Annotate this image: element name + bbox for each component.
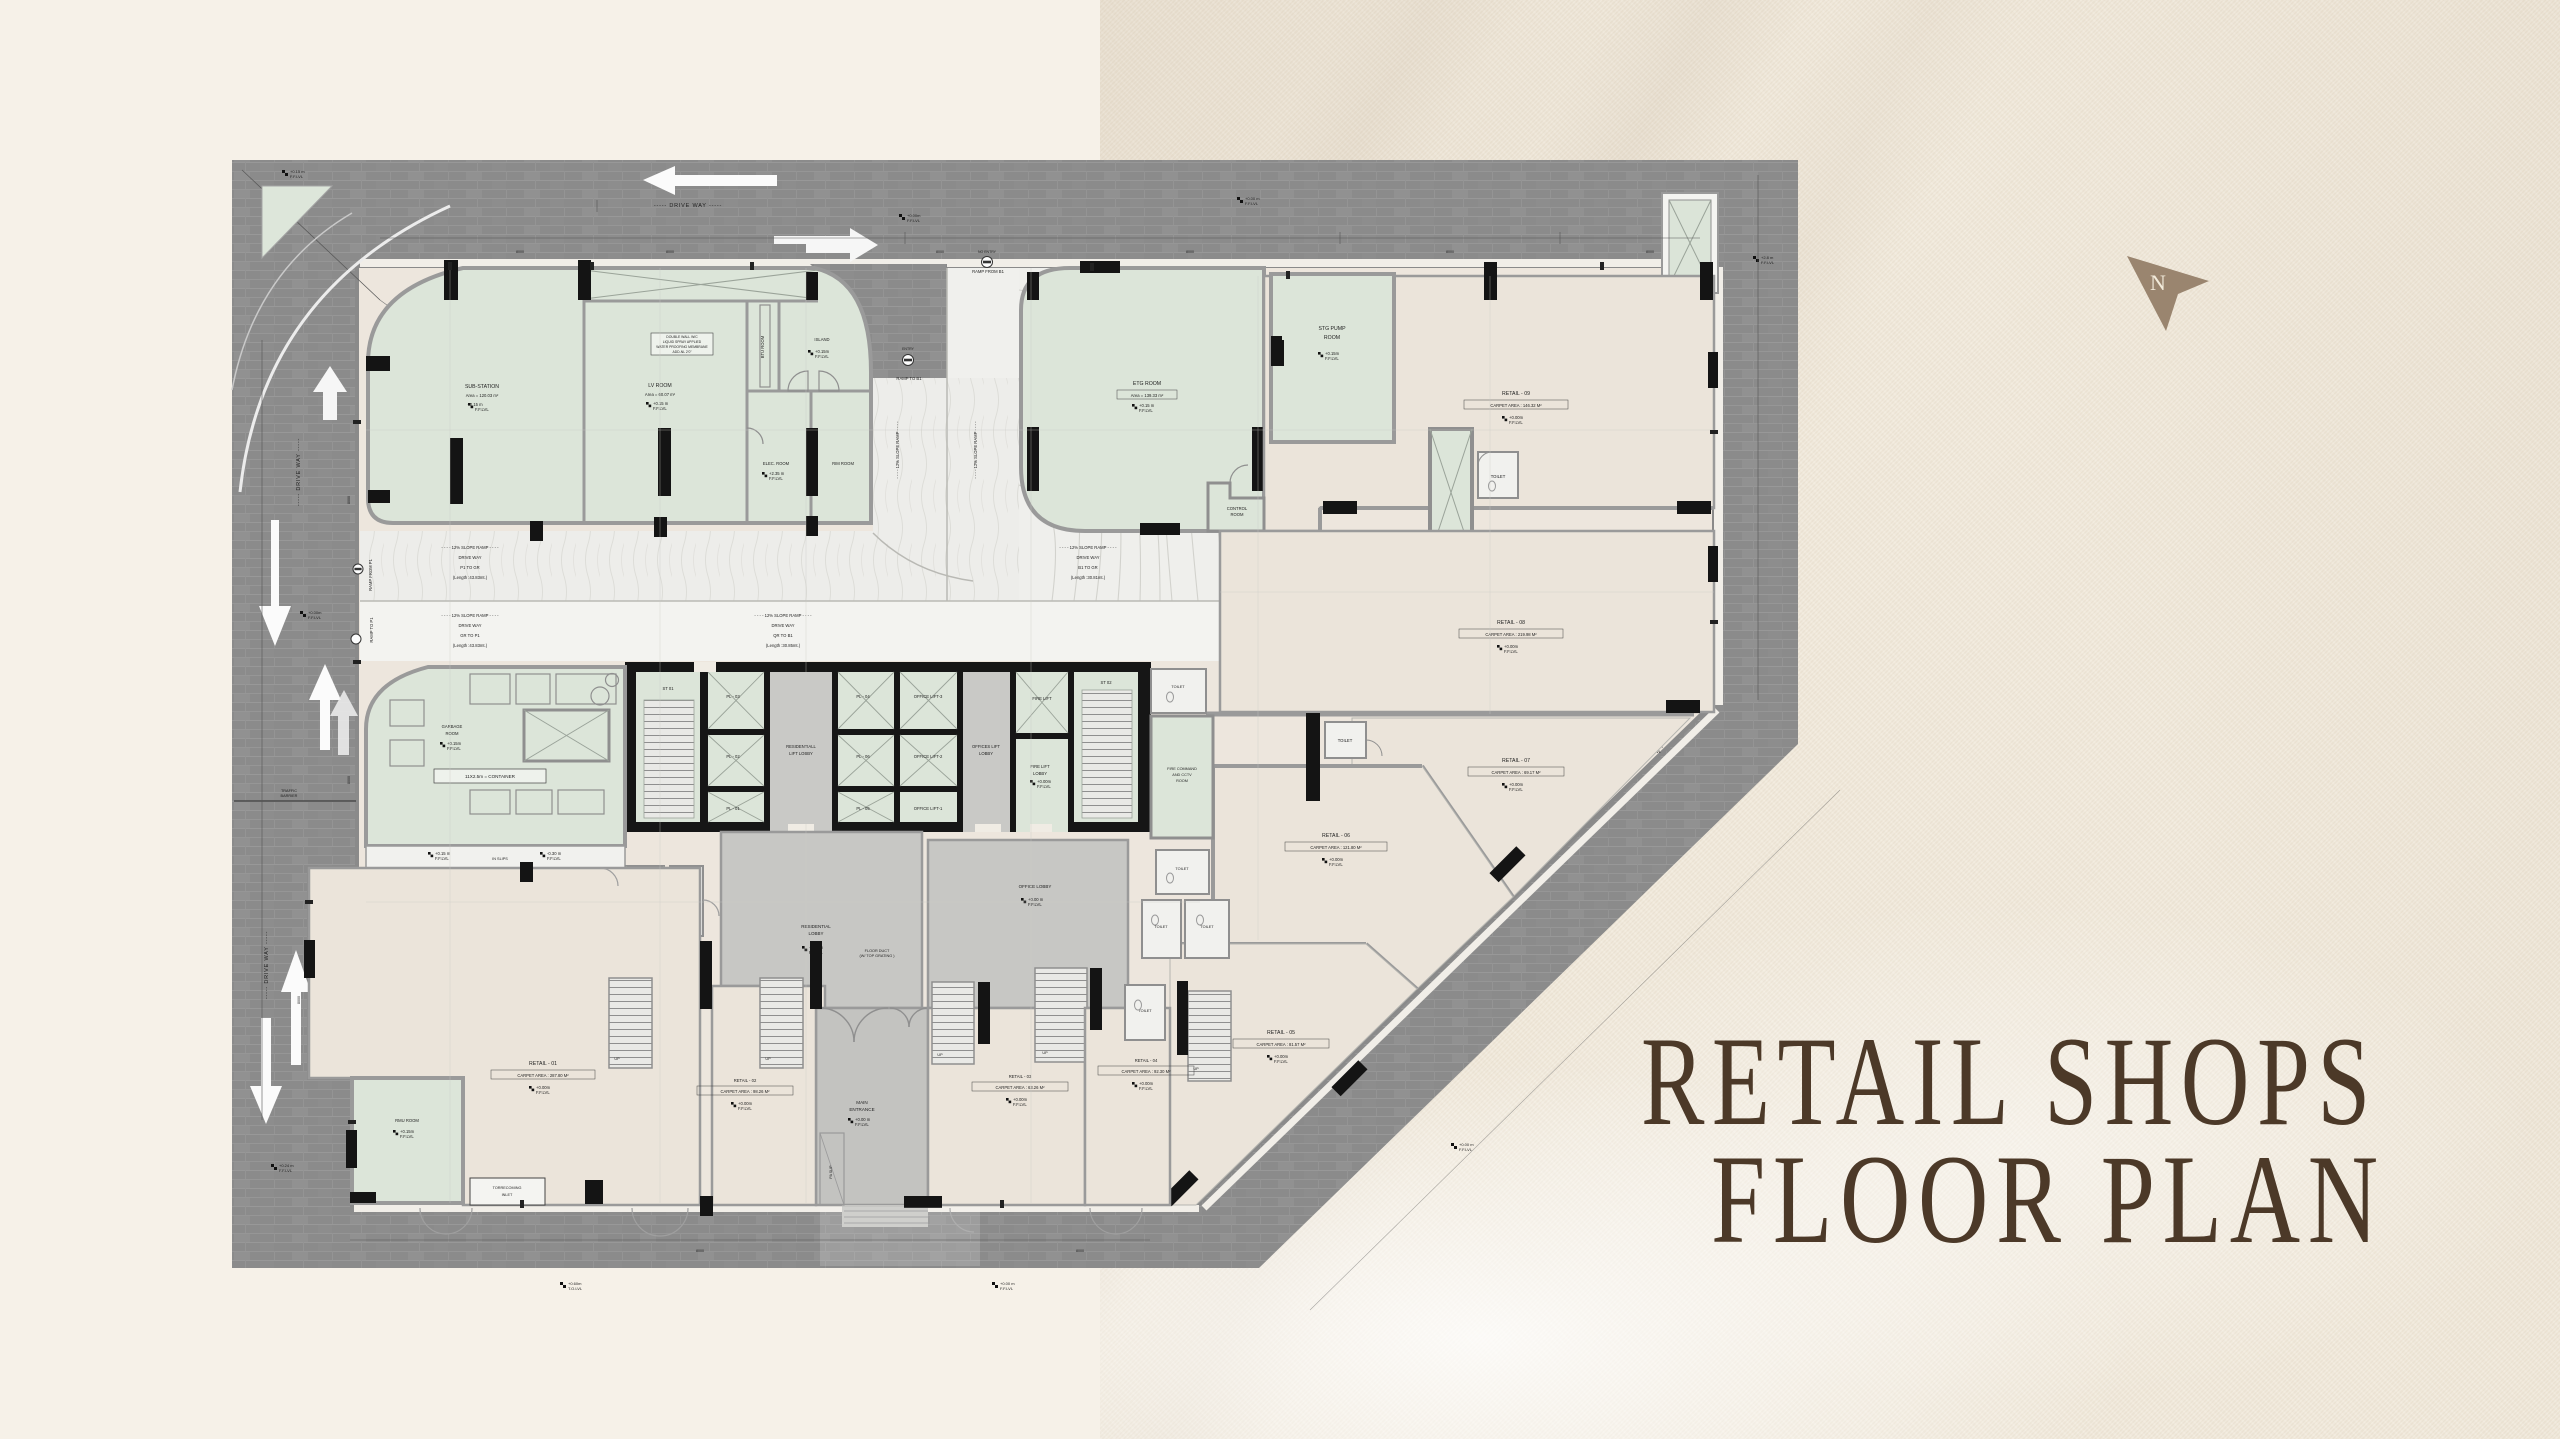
svg-text:PL - 06: PL - 06	[856, 754, 870, 759]
svg-text:F.F.LVL: F.F.LVL	[1028, 902, 1042, 907]
svg-text:8000: 8000	[516, 250, 524, 254]
svg-text:GARBAGE: GARBAGE	[442, 724, 463, 729]
svg-text:TOILET: TOILET	[1154, 925, 1168, 929]
svg-text:TOILET: TOILET	[1200, 925, 1214, 929]
svg-text:F.F.LVL: F.F.LVL	[1761, 260, 1775, 265]
svg-text:TRAFFIC: TRAFFIC	[281, 789, 297, 793]
svg-text:8000: 8000	[1186, 250, 1194, 254]
svg-text:F.F.LVL: F.F.LVL	[1139, 1086, 1153, 1091]
svg-text:DOUBLE WALL W/C: DOUBLE WALL W/C	[666, 335, 698, 339]
svg-text:F.F.LVL: F.F.LVL	[907, 218, 921, 223]
svg-text:ST 02: ST 02	[1100, 680, 1112, 685]
svg-text:PL - 03: PL - 03	[726, 694, 740, 699]
svg-text:F.F.LVL: F.F.LVL	[1509, 420, 1523, 425]
svg-text:LOBBY: LOBBY	[979, 751, 993, 756]
svg-text:----- DRIVE WAY -----: ----- DRIVE WAY -----	[654, 203, 722, 209]
svg-text:PA SLIP: PA SLIP	[829, 1165, 833, 1179]
svg-text:TORRECOMING: TORRECOMING	[493, 1186, 522, 1190]
svg-text:----- DRIVE WAY -----: ----- DRIVE WAY -----	[264, 931, 270, 999]
svg-text:DRIVE WAY: DRIVE WAY	[458, 623, 481, 628]
svg-text:BARRIER: BARRIER	[281, 794, 298, 798]
svg-text:ROOM: ROOM	[1324, 335, 1340, 341]
svg-text:FIRE LIFT: FIRE LIFT	[1032, 696, 1052, 701]
svg-text:ENTRY: ENTRY	[902, 347, 914, 351]
svg-text:RETAIL - 01: RETAIL - 01	[529, 1061, 557, 1067]
svg-text:PL - 04: PL - 04	[856, 694, 870, 699]
svg-text:P1 TO GR: P1 TO GR	[460, 565, 479, 570]
svg-text:CARPET AREA : 63.26 M²: CARPET AREA : 63.26 M²	[995, 1085, 1045, 1090]
svg-text:ROOM: ROOM	[1230, 512, 1244, 517]
svg-text:PL - 02: PL - 02	[726, 754, 740, 759]
svg-text:F.F.LVL: F.F.LVL	[1504, 649, 1518, 654]
svg-text:RETAIL - 09: RETAIL - 09	[1502, 391, 1530, 397]
svg-text:RAMP FROM P1: RAMP FROM P1	[368, 558, 373, 590]
svg-text:CARPET AREA : 81.57 M²: CARPET AREA : 81.57 M²	[1256, 1042, 1306, 1047]
svg-text:RAMP TO B1: RAMP TO B1	[896, 376, 922, 381]
svg-text:RETAIL - 03: RETAIL - 03	[1009, 1074, 1032, 1079]
svg-text:ROOM: ROOM	[445, 731, 459, 736]
svg-text:MAIN: MAIN	[856, 1100, 867, 1105]
svg-text:LOBBY: LOBBY	[808, 931, 823, 936]
svg-text:8000: 8000	[1076, 1249, 1084, 1253]
svg-text:RMU ROOM: RMU ROOM	[395, 1118, 419, 1123]
svg-text:(Length :43.83mt.): (Length :43.83mt.)	[453, 575, 488, 580]
svg-text:F.F.LVL: F.F.LVL	[815, 354, 829, 359]
svg-text:DRIVE WAY: DRIVE WAY	[458, 555, 481, 560]
svg-text:F.F.LVL: F.F.LVL	[536, 1090, 550, 1095]
svg-text:F.F.LVL: F.F.LVL	[1139, 408, 1153, 413]
svg-text:T.O.LVL: T.O.LVL	[568, 1286, 583, 1291]
svg-text:F.F.LVL: F.F.LVL	[1459, 1147, 1473, 1152]
svg-text:TOILET: TOILET	[1338, 738, 1353, 743]
svg-text:RETAIL - 04: RETAIL - 04	[1135, 1058, 1158, 1063]
svg-text:F.F.LVL: F.F.LVL	[769, 476, 783, 481]
svg-text:(W/ TOP GRATING ): (W/ TOP GRATING )	[860, 954, 896, 958]
svg-text:TOILET: TOILET	[1138, 1009, 1152, 1013]
svg-text:F.F.LVL: F.F.LVL	[279, 1168, 293, 1173]
svg-text:ELEC. ROOM: ELEC. ROOM	[763, 461, 790, 466]
svg-text:RETAIL - 08: RETAIL - 08	[1497, 620, 1525, 626]
svg-text:RAMP TO P1: RAMP TO P1	[369, 617, 374, 643]
svg-text:ISLAND: ISLAND	[814, 337, 829, 342]
svg-text:CARPET AREA : 92.30 M²: CARPET AREA : 92.30 M²	[1121, 1069, 1171, 1074]
svg-text:LOBBY: LOBBY	[1033, 771, 1047, 776]
svg-text:ROOM: ROOM	[1176, 779, 1188, 783]
svg-text:STG PUMP: STG PUMP	[1318, 326, 1346, 332]
svg-text:----- DRIVE WAY -----: ----- DRIVE WAY -----	[296, 438, 302, 506]
svg-text:ETG ROOM: ETG ROOM	[1133, 381, 1161, 387]
svg-text:Area = 60.07 m²: Area = 60.07 m²	[645, 392, 676, 397]
svg-text:8000: 8000	[936, 250, 944, 254]
svg-text:F.F.LVL: F.F.LVL	[435, 856, 449, 861]
svg-text:UP: UP	[765, 1057, 771, 1061]
svg-text:ADD-NL 2'0": ADD-NL 2'0"	[672, 350, 692, 354]
svg-text:TOILET: TOILET	[1491, 474, 1506, 479]
svg-text:RAMP FROM B1: RAMP FROM B1	[972, 269, 1004, 274]
svg-text:8000: 8000	[297, 996, 301, 1004]
svg-text:F.F.LVL: F.F.LVL	[290, 174, 304, 179]
svg-text:CARPET AREA : 287.80 M²: CARPET AREA : 287.80 M²	[517, 1073, 569, 1078]
svg-text:OFFICE LIFT-3: OFFICE LIFT-3	[914, 694, 943, 699]
svg-text:B1 TO GR: B1 TO GR	[1078, 565, 1097, 570]
svg-text:UP: UP	[937, 1053, 943, 1057]
svg-text:8000: 8000	[1646, 250, 1654, 254]
svg-text:WATER PROOFING MEMBRANE: WATER PROOFING MEMBRANE	[656, 345, 708, 349]
svg-text:CARPET AREA : 69.17 M²: CARPET AREA : 69.17 M²	[1491, 770, 1541, 775]
svg-text:RETAIL - 06: RETAIL - 06	[1322, 833, 1350, 839]
svg-text:SUB-STATION: SUB-STATION	[465, 384, 499, 390]
svg-text:CARPET AREA : 98.26 M²: CARPET AREA : 98.26 M²	[720, 1089, 770, 1094]
svg-text:FLOOR DUCT: FLOOR DUCT	[865, 949, 890, 953]
svg-text:F.F.LVL: F.F.LVL	[855, 1122, 869, 1127]
svg-text:RESIDENTIAL: RESIDENTIAL	[801, 924, 831, 929]
svg-text:Area = 139.33 m²: Area = 139.33 m²	[1131, 393, 1164, 398]
svg-text:F.F.LVL: F.F.LVL	[1329, 862, 1343, 867]
svg-text:CONTROL: CONTROL	[1227, 506, 1248, 511]
svg-text:OFFICE LIFT-2: OFFICE LIFT-2	[914, 754, 943, 759]
svg-text:8000: 8000	[666, 250, 674, 254]
svg-text:QR TO B1: QR TO B1	[773, 633, 793, 638]
svg-text:PL - 01: PL - 01	[726, 806, 740, 811]
svg-text:LIQUID SPRAY APPLIED: LIQUID SPRAY APPLIED	[663, 340, 702, 344]
svg-text:GR TO P1: GR TO P1	[460, 633, 480, 638]
svg-text:BTU ROOM: BTU ROOM	[760, 335, 765, 358]
svg-text:PL - 05: PL - 05	[856, 806, 870, 811]
svg-text:RETAIL - 02: RETAIL - 02	[734, 1078, 757, 1083]
svg-text:RETAIL - 05: RETAIL - 05	[1267, 1030, 1295, 1036]
svg-text:INLET: INLET	[502, 1193, 513, 1197]
svg-text:CARPET AREA : 146.32 M²: CARPET AREA : 146.32 M²	[1490, 403, 1542, 408]
svg-text:OFFICE LOBBY: OFFICE LOBBY	[1019, 884, 1052, 889]
svg-text:NO ENTRY: NO ENTRY	[978, 250, 997, 254]
svg-text:TOILET: TOILET	[1175, 867, 1189, 871]
svg-text:LIFT LOBBY: LIFT LOBBY	[789, 751, 813, 756]
svg-text:- - - - 12% SLOPE RAMP - - - -: - - - - 12% SLOPE RAMP - - - -	[895, 421, 900, 479]
svg-text:RESIDENTIALL: RESIDENTIALL	[786, 744, 816, 749]
svg-text:8000: 8000	[347, 776, 351, 784]
svg-text:TOILET: TOILET	[1171, 685, 1185, 689]
svg-text:AND CCTV: AND CCTV	[1172, 773, 1192, 777]
svg-text:ST 01: ST 01	[662, 686, 674, 691]
svg-text:DRIVE WAY: DRIVE WAY	[1076, 555, 1099, 560]
svg-text:- - - - 12% SLOPE RAMP - - - -: - - - - 12% SLOPE RAMP - - - -	[754, 613, 812, 618]
svg-text:F.F.LVL: F.F.LVL	[1245, 201, 1259, 206]
svg-text:RETAIL - 07: RETAIL - 07	[1502, 758, 1530, 764]
svg-text:FIRE LIFT: FIRE LIFT	[1030, 764, 1050, 769]
svg-text:Area = 120.03 m²: Area = 120.03 m²	[466, 393, 499, 398]
svg-text:11X2.5m = CONTAINER: 11X2.5m = CONTAINER	[465, 774, 516, 779]
svg-text:OFFICES LIFT: OFFICES LIFT	[972, 744, 1000, 749]
svg-text:RIM ROOM: RIM ROOM	[832, 461, 854, 466]
svg-text:ENTRANCE: ENTRANCE	[849, 1107, 874, 1112]
svg-text:CARPET AREA : 121.80 M²: CARPET AREA : 121.80 M²	[1310, 845, 1362, 850]
svg-text:OFFICE LIFT-1: OFFICE LIFT-1	[914, 806, 943, 811]
svg-text:DRIVE WAY: DRIVE WAY	[771, 623, 794, 628]
svg-text:F.F.LVL: F.F.LVL	[1325, 356, 1339, 361]
svg-text:CARPET AREA : 219.98 M²: CARPET AREA : 219.98 M²	[1485, 632, 1537, 637]
svg-text:F.F.LVL: F.F.LVL	[400, 1134, 414, 1139]
svg-text:- - - - 12% SLOPE RAMP - - - -: - - - - 12% SLOPE RAMP - - - -	[973, 421, 978, 479]
svg-text:(Length :30.85mt.): (Length :30.85mt.)	[766, 643, 801, 648]
svg-text:FIRE COMMAND: FIRE COMMAND	[1167, 767, 1197, 771]
svg-text:F.F.LVL: F.F.LVL	[547, 856, 561, 861]
svg-text:F.F.LVL: F.F.LVL	[1509, 787, 1523, 792]
svg-text:F.F.LVL: F.F.LVL	[308, 615, 322, 620]
svg-text:F.F.LVL: F.F.LVL	[1000, 1286, 1014, 1291]
svg-text:8000: 8000	[696, 1249, 704, 1253]
svg-text:(Length :30.81mt.): (Length :30.81mt.)	[1071, 575, 1106, 580]
svg-text:F.F.LVL: F.F.LVL	[1013, 1102, 1027, 1107]
svg-text:(Length :43.83mt.): (Length :43.83mt.)	[453, 643, 488, 648]
svg-text:IN SLIPS: IN SLIPS	[492, 857, 508, 861]
svg-text:F.F.LVL: F.F.LVL	[738, 1106, 752, 1111]
svg-text:8000: 8000	[1446, 250, 1454, 254]
svg-text:8000: 8000	[347, 496, 351, 504]
svg-text:F.F.LVL: F.F.LVL	[475, 407, 489, 412]
svg-text:UP: UP	[614, 1057, 620, 1061]
svg-text:F.F.LVL: F.F.LVL	[1274, 1059, 1288, 1064]
svg-text:UP: UP	[1042, 1051, 1048, 1055]
svg-text:- - - - 12% SLOPE RAMP - - - -: - - - - 12% SLOPE RAMP - - - -	[1059, 545, 1117, 550]
svg-text:F.F.LVL: F.F.LVL	[1037, 784, 1051, 789]
svg-text:F.F.LVL: F.F.LVL	[447, 746, 461, 751]
